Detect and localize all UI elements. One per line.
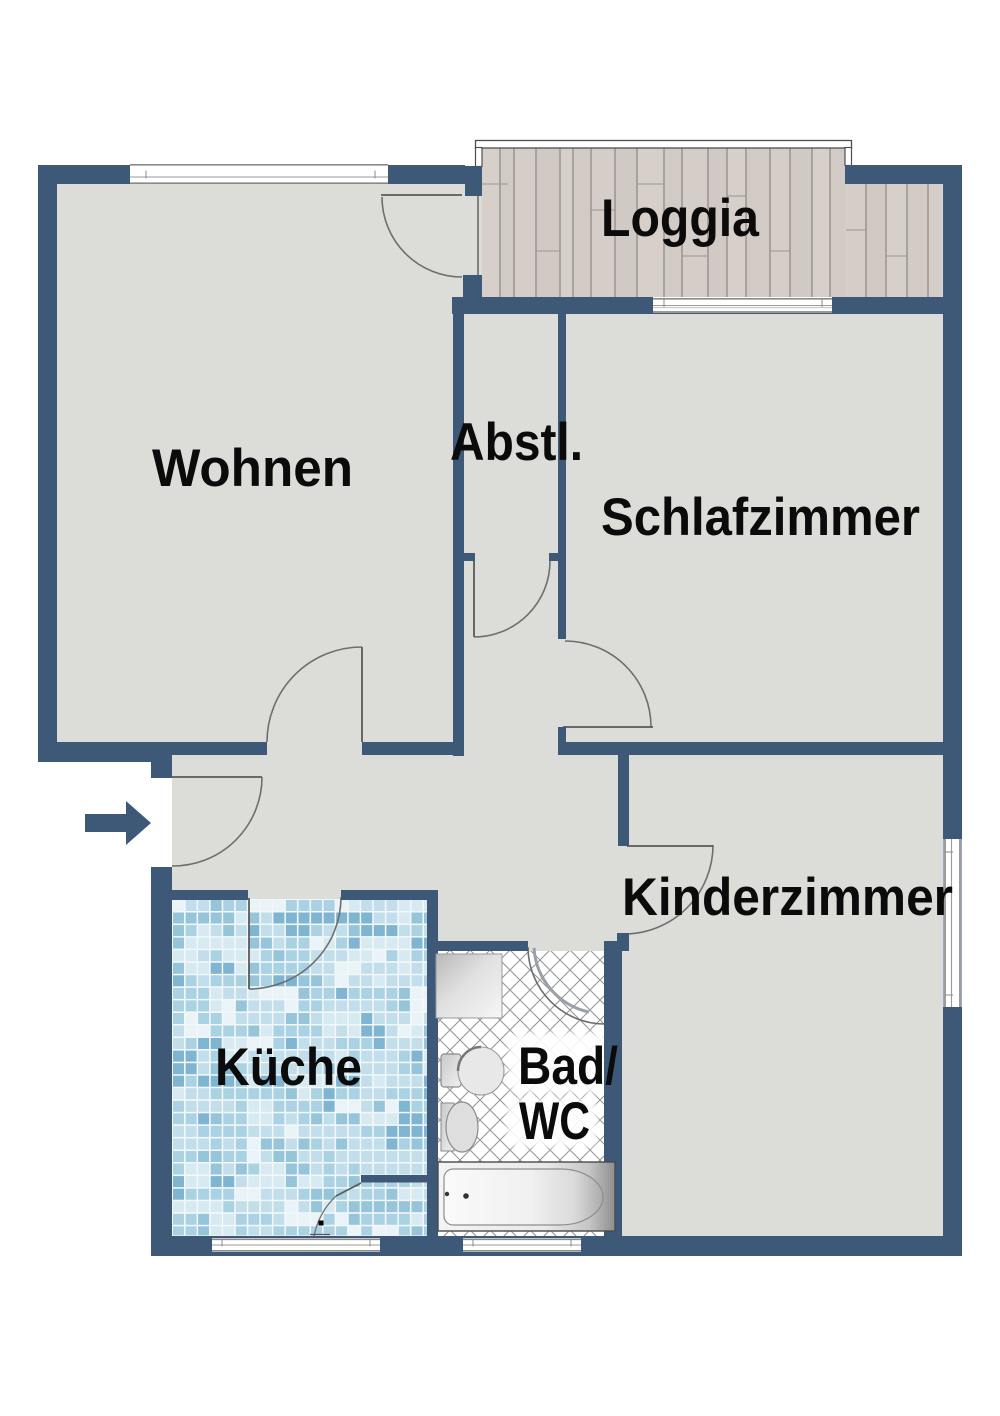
svg-text:WC: WC [519, 1092, 590, 1151]
svg-text:Kinderzimmer: Kinderzimmer [622, 868, 953, 927]
svg-text:Schlafzimmer: Schlafzimmer [601, 488, 920, 547]
svg-text:Bad/: Bad/ [518, 1037, 618, 1096]
svg-text:Abstl.: Abstl. [450, 413, 583, 472]
svg-text:Küche: Küche [215, 1038, 362, 1097]
svg-text:Loggia: Loggia [601, 189, 759, 248]
svg-text:Wohnen: Wohnen [152, 439, 353, 498]
